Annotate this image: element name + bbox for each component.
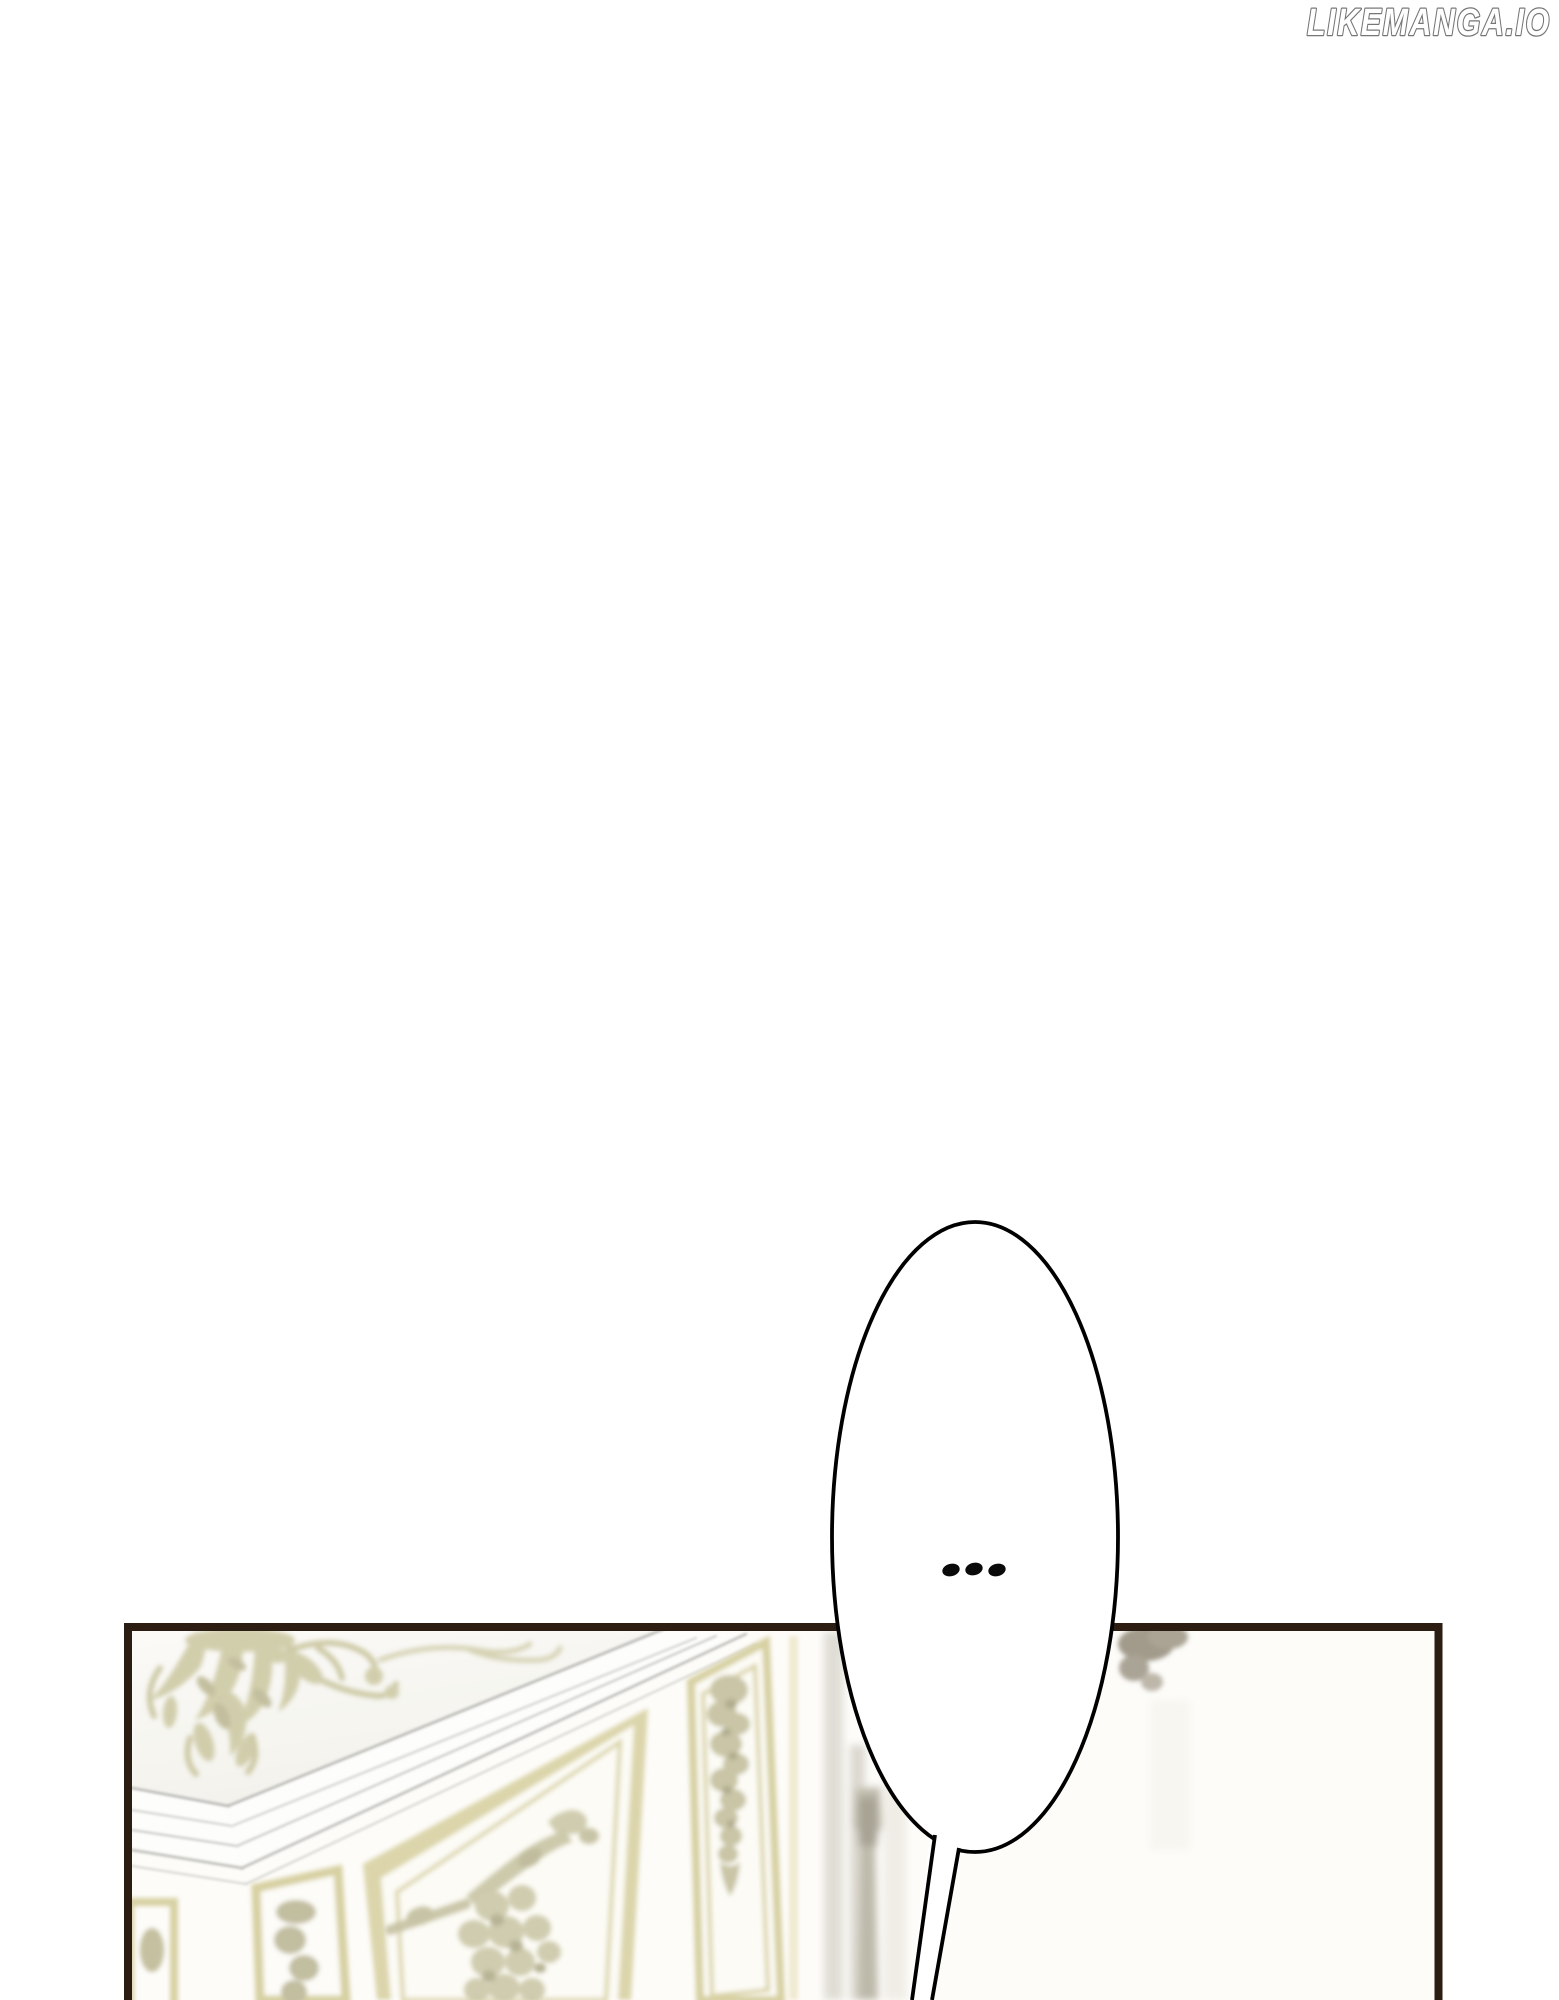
svg-text:LIKEMANGA.IO: LIKEMANGA.IO bbox=[1307, 2, 1551, 44]
